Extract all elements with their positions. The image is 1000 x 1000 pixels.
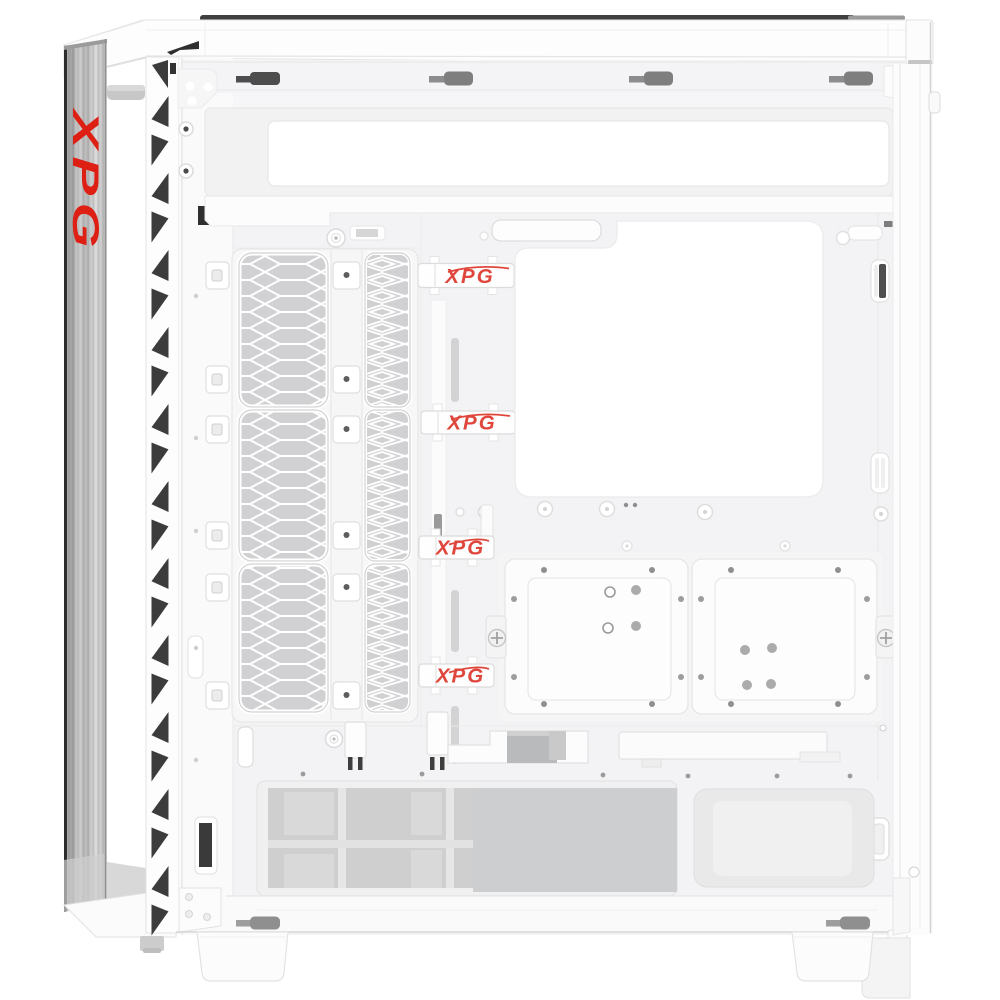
svg-text:XPG: XPG bbox=[65, 106, 106, 255]
